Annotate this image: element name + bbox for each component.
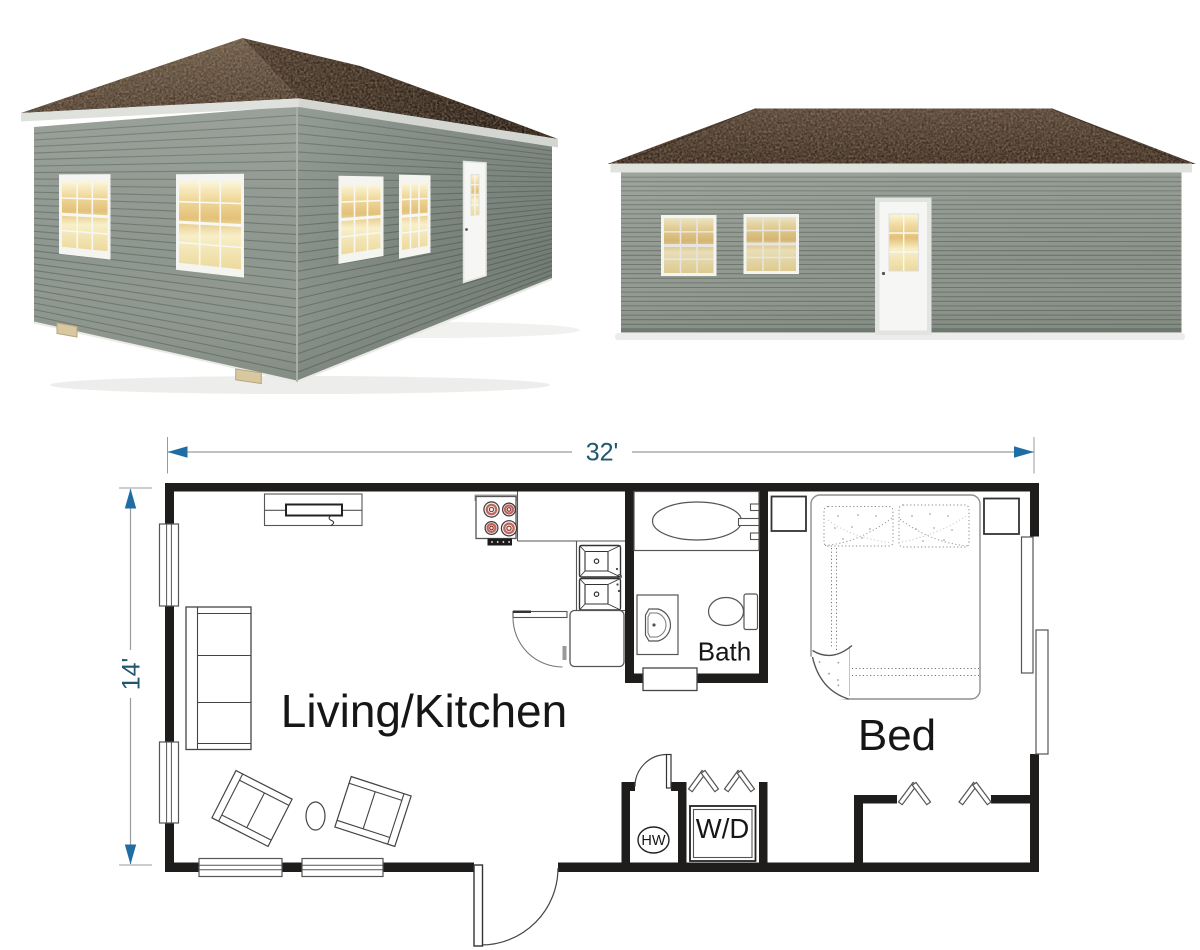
svg-text:Living/Kitchen: Living/Kitchen (281, 685, 567, 737)
svg-text:Bed: Bed (858, 711, 936, 760)
svg-text:14': 14' (118, 658, 146, 691)
svg-text:W/D: W/D (696, 813, 749, 844)
svg-text:32': 32' (586, 439, 619, 467)
svg-text:Bath: Bath (698, 637, 752, 667)
svg-text:HW: HW (641, 833, 665, 849)
